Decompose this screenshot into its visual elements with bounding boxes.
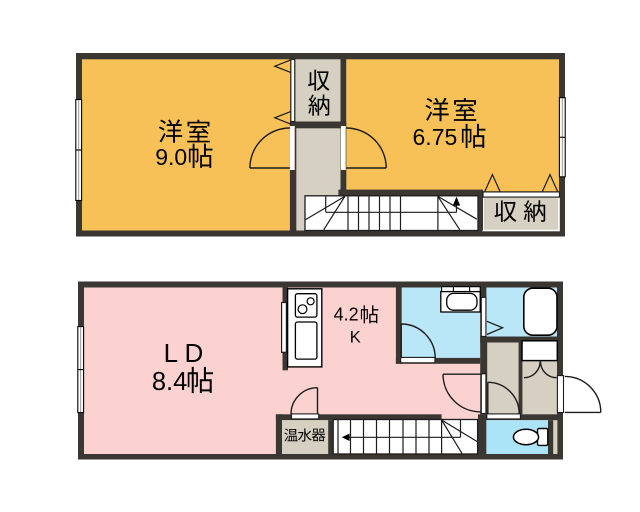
- svg-text:LD: LD: [164, 338, 210, 368]
- svg-text:6.75: 6.75: [413, 124, 458, 150]
- svg-text:9.0: 9.0: [155, 144, 187, 170]
- svg-text:8.4: 8.4: [152, 368, 187, 396]
- svg-text:K: K: [350, 329, 361, 347]
- svg-text:4.2: 4.2: [334, 305, 359, 325]
